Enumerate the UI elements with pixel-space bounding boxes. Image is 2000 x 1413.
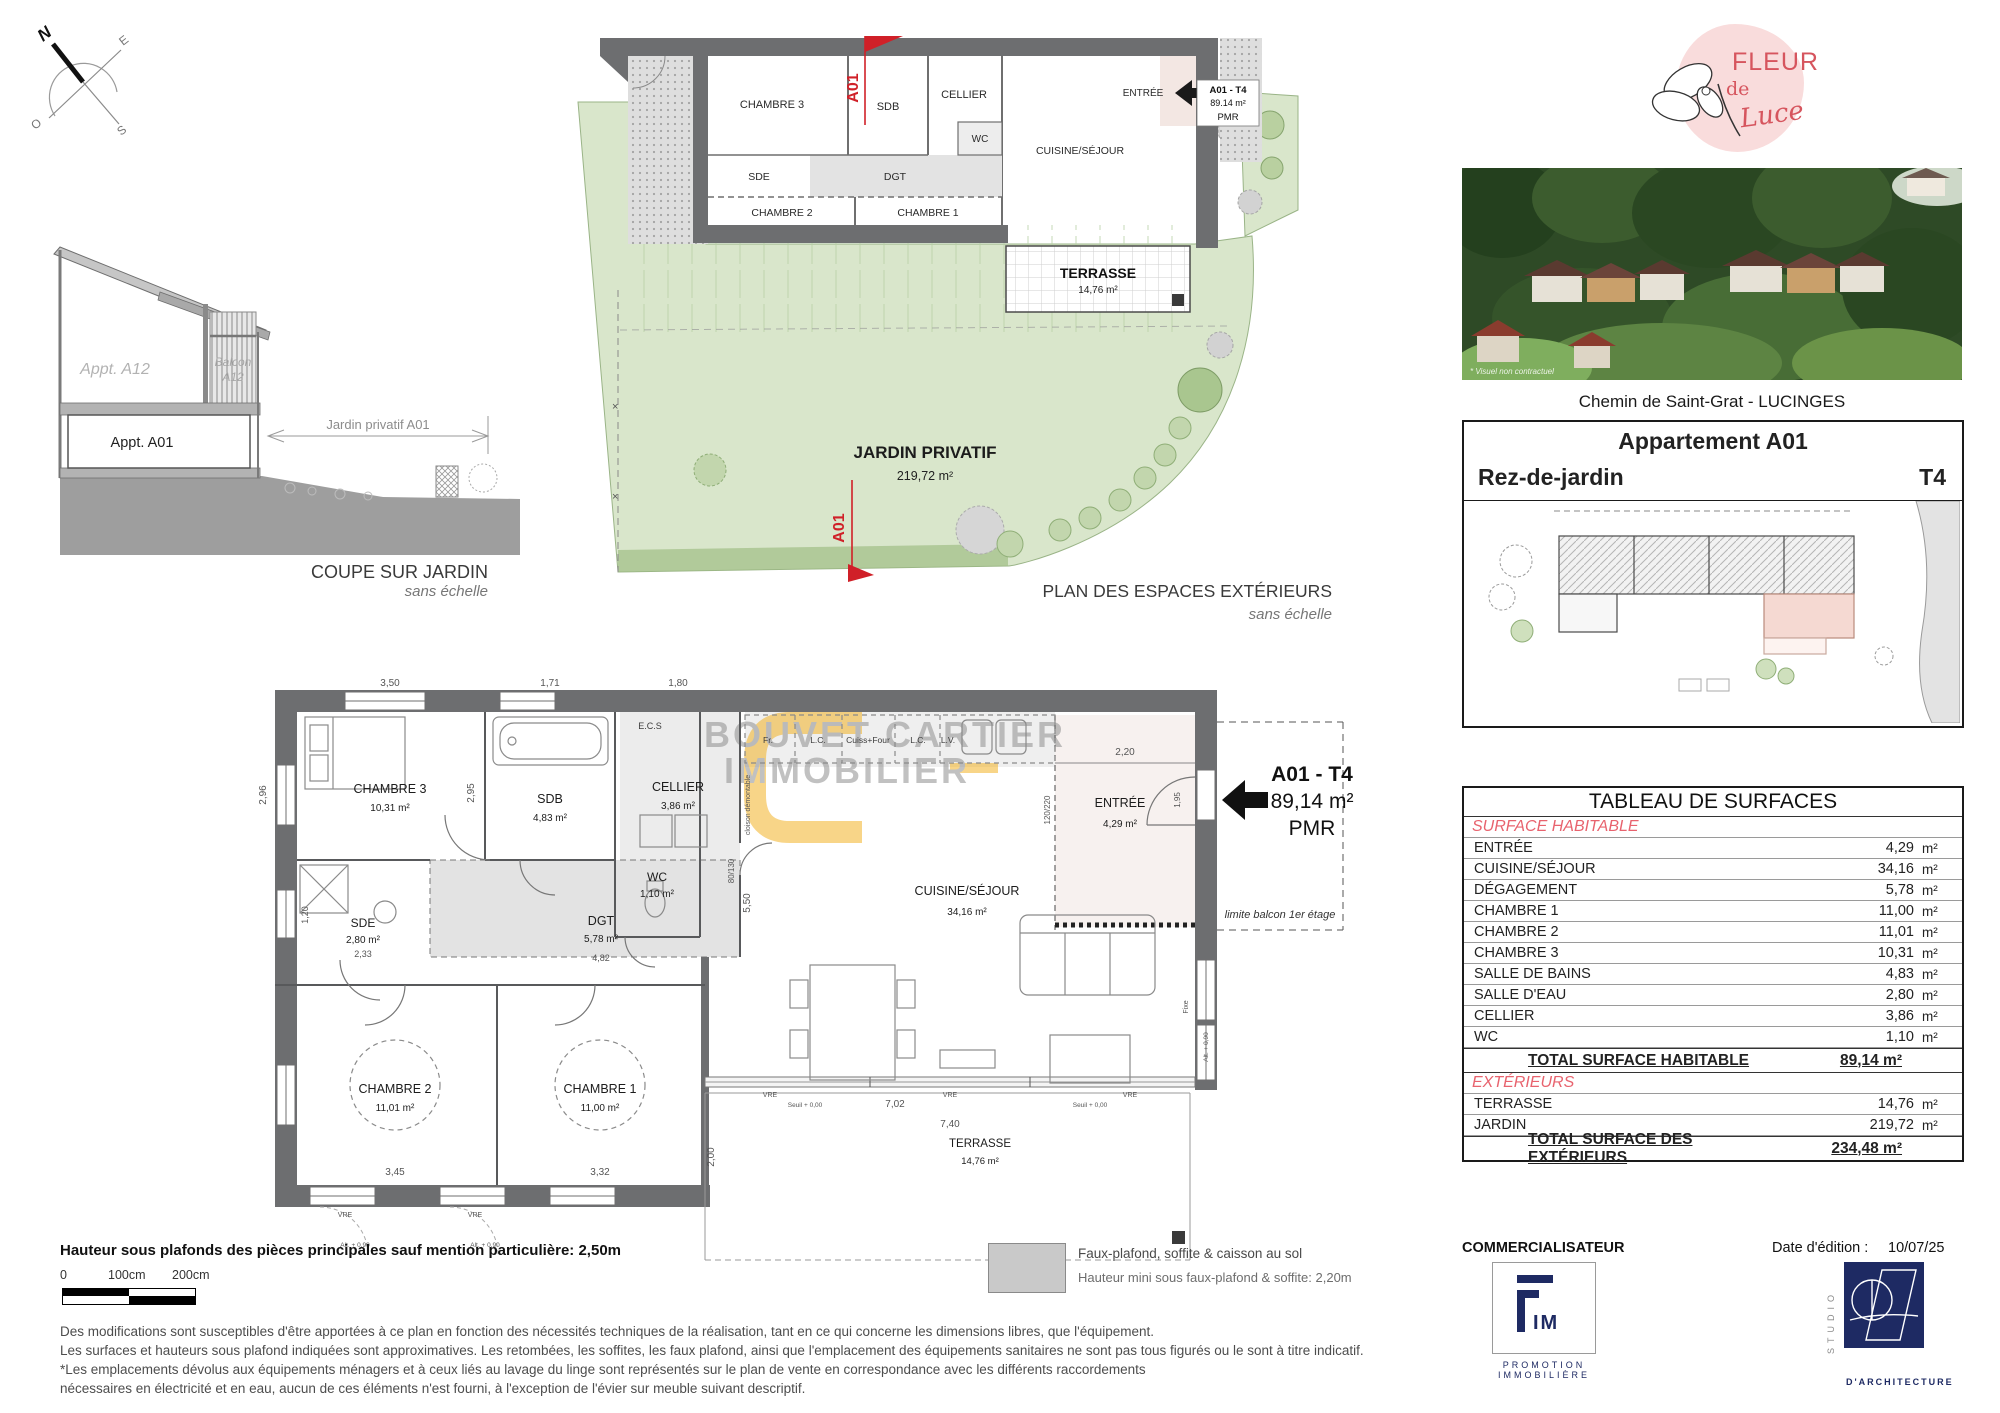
table-title: TABLEAU DE SURFACES xyxy=(1464,788,1962,817)
fim-glyph-icon: IM xyxy=(1493,1263,1595,1353)
room-chambre3: CHAMBRE 3 xyxy=(740,99,804,111)
vre-1: VRE xyxy=(763,1092,778,1099)
r-chambre3: CHAMBRE 3 xyxy=(354,782,427,796)
row-value: 1,10 xyxy=(1828,1029,1914,1045)
dim-220: 2,20 xyxy=(1115,747,1135,758)
logo-word-de: de xyxy=(1726,78,1749,100)
r-entree: ENTRÉE xyxy=(1095,795,1146,810)
row-label: CHAMBRE 3 xyxy=(1474,945,1828,961)
room-cellier: CELLIER xyxy=(941,89,987,101)
k-fr: Fr. xyxy=(763,735,773,745)
plan-espaces-exterieurs: × × xyxy=(560,30,1340,650)
row-value: 11,01 xyxy=(1828,924,1914,940)
table-row: WC1,10m² xyxy=(1464,1027,1962,1048)
row-label: DÉGAGEMENT xyxy=(1474,882,1828,898)
compass-rose-icon: N E S O xyxy=(25,20,145,145)
dim-702: 7,02 xyxy=(885,1099,905,1110)
legend-line2: Hauteur mini sous faux-plafond & soffite… xyxy=(1078,1270,1352,1285)
room-wc: WC xyxy=(972,134,989,145)
k-lc2: L.C. xyxy=(910,735,926,745)
unit-area-main: 89,14 m² xyxy=(1271,790,1354,813)
table-row: CELLIER3,86m² xyxy=(1464,1006,1962,1027)
row-value: 10,31 xyxy=(1828,945,1914,961)
note-line-4: nécessaires en électricité et en eau, au… xyxy=(60,1379,1364,1398)
unit-area-ext: 89.14 m² xyxy=(1210,98,1246,108)
studio-name: D'ARCHITECTURE xyxy=(1846,1377,1960,1387)
dim-120: 1,20 xyxy=(300,906,310,924)
total-exterieurs-row: TOTAL SURFACE DES EXTÉRIEURS 234,48 m² xyxy=(1464,1136,1962,1160)
r-chambre2: CHAMBRE 2 xyxy=(359,1082,432,1096)
room-chambre2: CHAMBRE 2 xyxy=(751,207,812,219)
dim-171: 1,71 xyxy=(540,678,560,689)
scale-0: 0 xyxy=(60,1268,67,1282)
section-exterieurs: EXTÉRIEURS xyxy=(1464,1073,1962,1094)
section-surface-habitable: SURFACE HABITABLE xyxy=(1464,817,1962,838)
r-wc: WC xyxy=(647,870,667,884)
fim-letters: IM xyxy=(1533,1312,1559,1334)
r-dgt: DGT xyxy=(588,914,615,928)
table-row: TERRASSE14,76m² xyxy=(1464,1094,1962,1115)
row-value: 5,78 xyxy=(1828,882,1914,898)
studio-architecture-logo: STUDIO D'ARCHITECTURE xyxy=(1820,1262,1960,1387)
row-unit: m² xyxy=(1914,988,1956,1003)
label-appt-a01: Appt. A01 xyxy=(111,435,174,451)
cloison-note: cloison démontable xyxy=(745,775,752,835)
row-label: SALLE D'EAU xyxy=(1474,987,1828,1003)
floor-plan-a01: BOUVET CARTIER IMMOBILIER xyxy=(250,675,1390,1290)
alt-3: Alt. + 0,90 xyxy=(1203,1032,1210,1062)
vre-4: VRE xyxy=(338,1212,353,1219)
label-balcon-a12: A12 xyxy=(221,370,244,384)
room-chambre1: CHAMBRE 1 xyxy=(897,207,958,219)
dim-296: 2,96 xyxy=(258,785,269,805)
unit-type: T4 xyxy=(1919,464,1946,491)
ecs-label: E.C.S xyxy=(638,721,662,731)
logo-word-fleur: FLEUR xyxy=(1732,48,1819,77)
coupe-caption: COUPE SUR JARDIN sans échelle xyxy=(230,562,488,600)
row-value: 3,86 xyxy=(1828,1008,1914,1024)
r-cellier: CELLIER xyxy=(652,780,704,794)
table-row: SALLE DE BAINS4,83m² xyxy=(1464,964,1962,985)
note-line-3: *Les emplacements dévolus aux équipement… xyxy=(60,1360,1364,1379)
fim-logo: IM PROMOTION IMMOBILIÈRE xyxy=(1492,1262,1596,1380)
r-sde: SDE xyxy=(351,916,376,930)
r-cuisine: CUISINE/SÉJOUR xyxy=(915,883,1020,898)
dim-345: 3,45 xyxy=(385,1167,405,1178)
row-value: 11,00 xyxy=(1828,903,1914,919)
room-entree: ENTRÉE xyxy=(1123,86,1164,99)
svg-text:×: × xyxy=(612,491,618,503)
entry-arrow-icon xyxy=(1222,780,1268,820)
scale-bar: 0 100cm 200cm xyxy=(60,1268,280,1308)
r-terrasse: TERRASSE xyxy=(949,1138,1011,1150)
seuil-1: Seuil + 0,00 xyxy=(788,1102,823,1109)
row-unit: m² xyxy=(1914,1097,1956,1112)
dim-120220: 120/220 xyxy=(1043,795,1052,824)
row-label: ENTRÉE xyxy=(1474,840,1828,856)
r-chambre1: CHAMBRE 1 xyxy=(564,1082,637,1096)
faux-plafond-swatch xyxy=(988,1243,1066,1293)
coupe-shapes xyxy=(54,247,520,555)
limite-balcon-note: limite balcon 1er étage xyxy=(1225,909,1336,921)
row-value: 4,29 xyxy=(1828,840,1914,856)
seuil-2: Seuil + 0,00 xyxy=(1073,1102,1108,1109)
edition-date-label: Date d'édition : xyxy=(1772,1240,1868,1256)
r-cellier-a: 3,86 m² xyxy=(661,801,696,812)
table-row: DÉGAGEMENT5,78m² xyxy=(1464,880,1962,901)
r-sdb: SDB xyxy=(537,792,563,806)
plan-sheet: N E S O xyxy=(0,0,2000,1413)
dim-740: 7,40 xyxy=(940,1119,960,1130)
row-unit: m² xyxy=(1914,841,1956,856)
fleur-de-luce-logo: FLEUR de Luce xyxy=(1648,22,1838,162)
r-chambre1-a: 11,00 m² xyxy=(581,1103,620,1114)
row-label: CELLIER xyxy=(1474,1008,1828,1024)
section-marker-a01-top: A01 xyxy=(845,73,862,102)
site-photo: * Visuel non contractuel xyxy=(1462,168,1962,380)
row-unit: m² xyxy=(1914,883,1956,898)
room-cuisine: CUISINE/SÉJOUR xyxy=(1036,144,1125,157)
r-sde-a: 2,80 m² xyxy=(346,935,381,946)
total-habitable-label: TOTAL SURFACE HABITABLE xyxy=(1464,1052,1752,1070)
row-unit: m² xyxy=(1914,1118,1956,1133)
coupe-title: COUPE SUR JARDIN xyxy=(230,562,488,583)
table-row: CHAMBRE 111,00m² xyxy=(1464,901,1962,922)
dim-550: 5,50 xyxy=(742,893,753,913)
row-label: CHAMBRE 2 xyxy=(1474,924,1828,940)
row-unit: m² xyxy=(1914,946,1956,961)
svg-text:×: × xyxy=(612,401,618,413)
coupe-sur-jardin-drawing: Appt. A12 Balcon A12 Appt. A01 Jardin pr… xyxy=(40,240,520,555)
unit-header-box: Appartement A01 Rez-de-jardin T4 xyxy=(1462,420,1964,728)
total-exterieurs-label: TOTAL SURFACE DES EXTÉRIEURS xyxy=(1464,1131,1752,1167)
dim-195: 1,95 xyxy=(1173,792,1182,808)
studio-vertical-word: STUDIO xyxy=(1826,1290,1836,1354)
commercialisateur-label: COMMERCIALISATEUR xyxy=(1462,1240,1624,1256)
section-marker-a01-bottom: A01 xyxy=(831,513,848,542)
scale-100: 100cm xyxy=(108,1268,146,1282)
row-label: SALLE DE BAINS xyxy=(1474,966,1828,982)
total-habitable-row: TOTAL SURFACE HABITABLE 89,14 m² xyxy=(1464,1048,1962,1073)
room-sdb: SDB xyxy=(877,101,900,113)
dim-482: 4,82 xyxy=(592,953,610,963)
vre-2: VRE xyxy=(943,1092,958,1099)
k-lc1: L.C. xyxy=(810,735,826,745)
label-balcon: Balcon xyxy=(215,355,252,369)
k-lv: L.V. xyxy=(941,735,955,745)
edition-date-value: 10/07/25 xyxy=(1888,1240,1944,1256)
r-terrasse-a: 14,76 m² xyxy=(961,1156,999,1167)
row-unit: m² xyxy=(1914,967,1956,982)
row-unit: m² xyxy=(1914,1009,1956,1024)
studio-logo-icon: STUDIO xyxy=(1820,1262,1960,1372)
photo-disclaimer: * Visuel non contractuel xyxy=(1470,367,1554,376)
jardin-privatif-label: JARDIN PRIVATIF xyxy=(854,443,997,462)
r-entree-a: 4,29 m² xyxy=(1103,819,1138,830)
r-dgt-a: 5,78 m² xyxy=(584,934,619,945)
table-row: ENTRÉE4,29m² xyxy=(1464,838,1962,859)
table-row: CHAMBRE 211,01m² xyxy=(1464,922,1962,943)
fim-sub2: IMMOBILIÈRE xyxy=(1492,1370,1596,1380)
plan-ext-subtitle: sans échelle xyxy=(1249,606,1332,623)
dim-332: 3,32 xyxy=(590,1167,610,1178)
row-unit: m² xyxy=(1914,1030,1956,1045)
row-label: WC xyxy=(1474,1029,1828,1045)
k-cuiss: Cuiss+Four xyxy=(846,735,890,745)
compass-east: E xyxy=(116,32,131,48)
table-row: CUISINE/SÉJOUR34,16m² xyxy=(1464,859,1962,880)
row-value: 4,83 xyxy=(1828,966,1914,982)
row-label: CHAMBRE 1 xyxy=(1474,903,1828,919)
plan-ext-title: PLAN DES ESPACES EXTÉRIEURS xyxy=(1043,581,1333,601)
ceiling-height-note: Hauteur sous plafonds des pièces princip… xyxy=(60,1242,621,1259)
row-value: 2,80 xyxy=(1828,987,1914,1003)
row-unit: m² xyxy=(1914,862,1956,877)
row-value: 14,76 xyxy=(1828,1096,1914,1112)
r-cuisine-a: 34,16 m² xyxy=(947,907,987,918)
vre-3: VRE xyxy=(1123,1092,1138,1099)
dim-80130: 80/130 xyxy=(727,858,736,883)
note-line-2: Les surfaces et hauteurs sous plafond in… xyxy=(60,1341,1364,1360)
r-chambre2-a: 11,01 m² xyxy=(376,1103,415,1114)
photo-caption: Chemin de Saint-Grat - LUCINGES xyxy=(1462,392,1962,412)
terrasse-label: TERRASSE xyxy=(1060,265,1136,281)
room-dgt: DGT xyxy=(884,171,907,183)
compass-west: O xyxy=(28,116,44,133)
disclaimer-notes: Des modifications sont susceptibles d'êt… xyxy=(60,1322,1364,1398)
r-wc-a: 1,10 m² xyxy=(640,889,675,900)
note-line-1: Des modifications sont susceptibles d'êt… xyxy=(60,1322,1364,1341)
surface-table: TABLEAU DE SURFACES SURFACE HABITABLE EN… xyxy=(1462,786,1964,1162)
label-jardin-privatif-a01-dim: Jardin privatif A01 xyxy=(326,417,429,432)
fim-sub1: PROMOTION xyxy=(1492,1360,1596,1370)
coupe-subtitle: sans échelle xyxy=(230,583,488,600)
table-row: SALLE D'EAU2,80m² xyxy=(1464,985,1962,1006)
label-appt-a12: Appt. A12 xyxy=(79,361,150,378)
compass-south: S xyxy=(114,122,129,138)
unit-header: Appartement A01 Rez-de-jardin T4 xyxy=(1464,422,1962,501)
row-label: TERRASSE xyxy=(1474,1096,1828,1112)
dim-233: 2,33 xyxy=(354,949,372,959)
dim-350: 3,50 xyxy=(380,678,400,689)
r-chambre3-a: 10,31 m² xyxy=(370,803,410,814)
compass-north: N xyxy=(34,22,56,45)
row-value: 219,72 xyxy=(1828,1117,1914,1133)
r-sdb-a: 4,83 m² xyxy=(533,813,568,824)
row-unit: m² xyxy=(1914,925,1956,940)
unit-pmr-main: PMR xyxy=(1289,817,1336,840)
row-value: 34,16 xyxy=(1828,861,1914,877)
unit-code-ext: A01 - T4 xyxy=(1210,85,1248,96)
jardin-privatif-area: 219,72 m² xyxy=(897,469,953,483)
dim-200: 2,00 xyxy=(706,1147,717,1167)
vre-5: VRE xyxy=(468,1212,483,1219)
scale-200: 200cm xyxy=(172,1268,210,1282)
unit-floor: Rez-de-jardin xyxy=(1478,464,1624,491)
watermark-line2: IMMOBILIER xyxy=(724,750,970,791)
row-unit: m² xyxy=(1914,904,1956,919)
terrasse-area: 14,76 m² xyxy=(1078,285,1118,296)
site-plan xyxy=(1464,501,1960,723)
unit-title: Appartement A01 xyxy=(1464,428,1962,455)
dim-180: 1,80 xyxy=(668,678,688,689)
fixe-label: Fixe xyxy=(1183,1000,1190,1013)
room-sde: SDE xyxy=(748,171,770,183)
total-habitable-value: 89,14 m² xyxy=(1752,1052,1902,1070)
table-row: CHAMBRE 310,31m² xyxy=(1464,943,1962,964)
total-exterieurs-value: 234,48 m² xyxy=(1752,1140,1902,1158)
unit-code-main: A01 - T4 xyxy=(1271,763,1353,786)
legend-line1: Faux-plafond, soffite & caisson au sol xyxy=(1078,1246,1302,1261)
unit-pmr-ext: PMR xyxy=(1217,112,1238,123)
dim-295: 2,95 xyxy=(466,783,477,803)
row-label: CUISINE/SÉJOUR xyxy=(1474,861,1828,877)
